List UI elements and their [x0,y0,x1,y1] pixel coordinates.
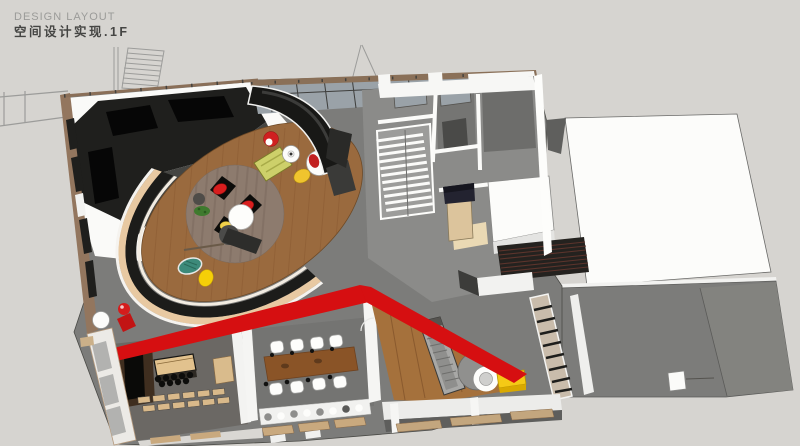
white-ball-chair [93,312,110,329]
gray-terrace-wing [560,277,793,397]
tan-cabinet [213,356,234,384]
kettle [193,193,205,205]
red-ball-chair [264,132,279,147]
page-title: DESIGN LAYOUT [14,10,130,24]
floorplan-render [0,0,800,446]
plant-dish [194,206,210,216]
page-header: DESIGN LAYOUT 空间设计实现.1F [14,10,130,40]
terrace-white-box [668,371,686,391]
design-layout-slide: DESIGN LAYOUT 空间设计实现.1F [0,0,800,446]
red-ball-seat [118,303,130,315]
page-subtitle: 空间设计实现.1F [14,24,130,40]
staircase [376,124,434,219]
beige-cabinet [447,199,473,241]
round-side-table [283,146,300,163]
white-roof-terrace [565,114,771,286]
